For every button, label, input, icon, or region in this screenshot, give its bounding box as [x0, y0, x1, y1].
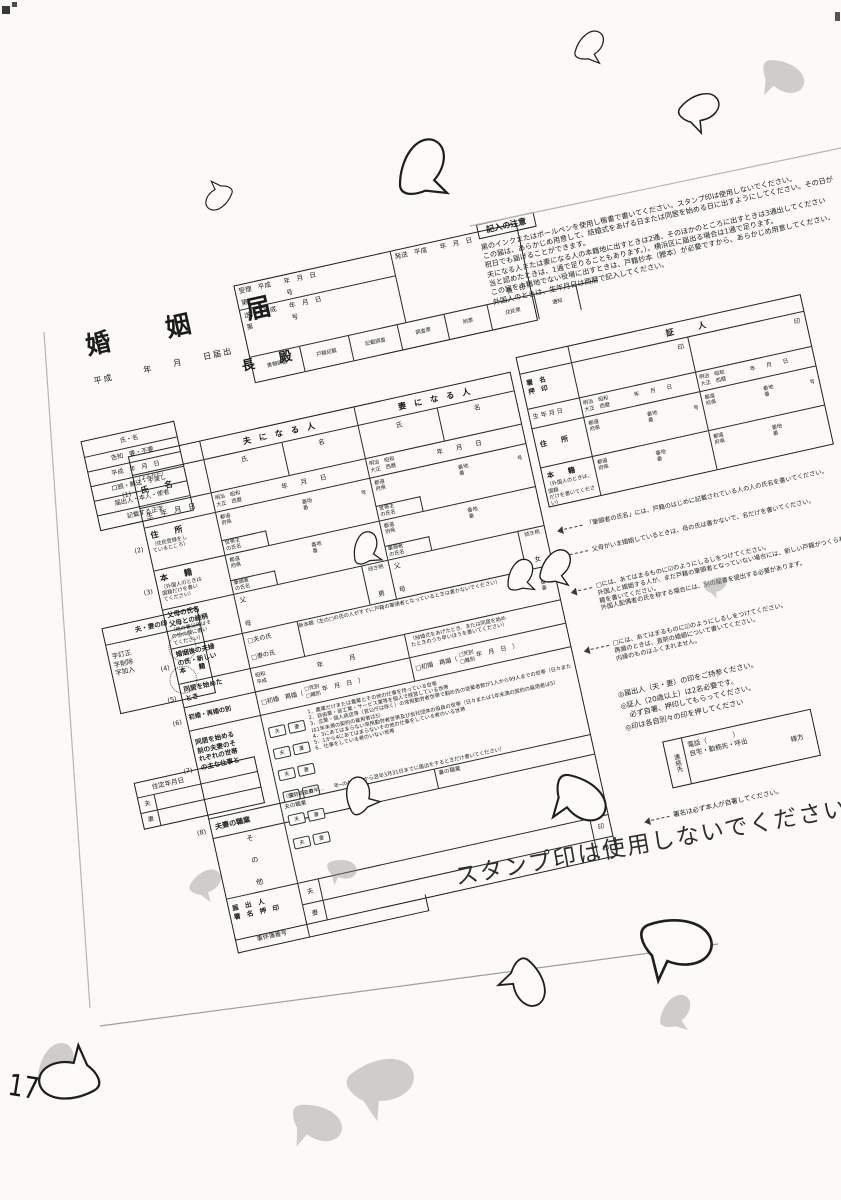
- pref-label: 都道 府県: [588, 419, 601, 433]
- ymd-label: 年 月 日: [633, 384, 673, 399]
- contact-box: 連絡先 電話（ ） 自宅・勤務先・呼出 様方: [662, 709, 821, 789]
- seal-mark: 印: [677, 343, 685, 353]
- banchi-label: 番地 番: [647, 410, 660, 424]
- ymd-label: 年 月 日 ）: [476, 642, 520, 659]
- first-marriage-option: □初婚 再婚（: [258, 690, 305, 708]
- row-number: (5): [167, 695, 178, 705]
- mother-label: 母: [398, 585, 406, 595]
- ymd-label: 年 月 日: [750, 358, 790, 373]
- pref-label: 都道 府県: [229, 556, 242, 570]
- scan-corner-mark: [835, 12, 840, 21]
- givenname-col-label: 名: [473, 403, 481, 413]
- father-label: 父: [239, 595, 247, 605]
- row-number: (6): [172, 718, 183, 728]
- pref-label: 都道 府県: [597, 458, 610, 472]
- wife-checkbox: 妻: [297, 763, 316, 777]
- scanned-marriage-registration-page: { "title_block": { "title": "婚 姻 届", "da…: [0, 0, 841, 1200]
- husband-checkbox: 夫: [273, 745, 292, 759]
- pointer-arrow-icon: [573, 587, 593, 592]
- pref-label: 都道 府県: [220, 513, 233, 527]
- go-label: 号: [517, 455, 523, 462]
- era-options: 明治 昭和 大正 西暦: [697, 370, 727, 388]
- wife-checkbox: 妻: [292, 741, 311, 755]
- first-marriage-option: □初婚 再婚（: [412, 656, 459, 674]
- row-number: (3): [143, 587, 154, 597]
- pref-label: 都道 府県: [374, 479, 387, 493]
- banchi-label: 番地 番: [763, 384, 776, 398]
- husband-checkbox: 夫: [277, 767, 296, 781]
- banchi-label: 番地 番: [655, 449, 668, 463]
- husband-occupation-label: 夫の職業: [284, 800, 307, 811]
- contact-label: 連絡先: [671, 753, 683, 773]
- pref-label: 都道 府県: [713, 432, 726, 446]
- era-options: 明治 昭和 大正 西暦: [367, 456, 397, 474]
- banchi-label: 番地 番: [771, 423, 784, 437]
- pointer-arrow-icon: [559, 524, 583, 530]
- pointer-arrow-icon: [564, 550, 588, 556]
- father-label: 父: [393, 561, 401, 571]
- filling-instructions: 記入の注意 黒のインクまたはボールペンを使用し楷書で書いてください。スタンプ印は…: [475, 77, 841, 307]
- year-month-label: 年 月: [316, 653, 356, 670]
- banchi-label: 番地 番: [467, 506, 480, 520]
- other-label: そ の 他: [245, 833, 266, 890]
- seal-mark: 印: [793, 317, 801, 327]
- surname-col-label: 氏: [395, 421, 403, 431]
- go-label: 号: [809, 379, 815, 386]
- row-number: (2): [134, 546, 145, 556]
- banchi-label: 番地 番: [301, 498, 314, 512]
- wife-occupation-label: 妻の職業: [438, 766, 461, 777]
- go-label: 号: [693, 405, 699, 412]
- pointer-arrow-icon: [586, 645, 610, 651]
- banchi-label: 番地 番: [540, 578, 553, 592]
- banchi-label: 番地 番: [311, 541, 324, 555]
- givenname-col-label: 名: [318, 438, 326, 448]
- mother-label: 母: [244, 619, 252, 629]
- go-label: 号: [361, 490, 367, 497]
- scan-corner-mark: [12, 2, 17, 7]
- pref-label: 都道 府県: [704, 393, 717, 407]
- scan-corner-mark: [2, 6, 10, 14]
- ymd-label: 年 月 日 ）: [321, 676, 365, 693]
- banchi-label: 番地 番: [458, 463, 471, 477]
- row-number: (8): [196, 828, 207, 838]
- handwritten-margin-marks: 17: [6, 1071, 28, 1103]
- wife-checkbox: 妻: [287, 720, 306, 734]
- husband-checkbox: 夫: [268, 724, 287, 738]
- relation-daughter: 女: [524, 553, 551, 567]
- era-options: 昭和 平成: [252, 671, 268, 686]
- relation-son: 男: [368, 588, 395, 602]
- surname-col-label: 氏: [240, 455, 248, 465]
- era-options: 明治 昭和 大正 西暦: [212, 490, 242, 508]
- era-options: 明治 昭和 大正 西暦: [581, 395, 611, 413]
- marriage-registration-form: 婚 姻 届 平成 年 月 日届出 長 殿 受理 平成 年 月 日 第 号 送付 …: [15, 6, 841, 1049]
- pref-label: 都道 府県: [383, 522, 396, 536]
